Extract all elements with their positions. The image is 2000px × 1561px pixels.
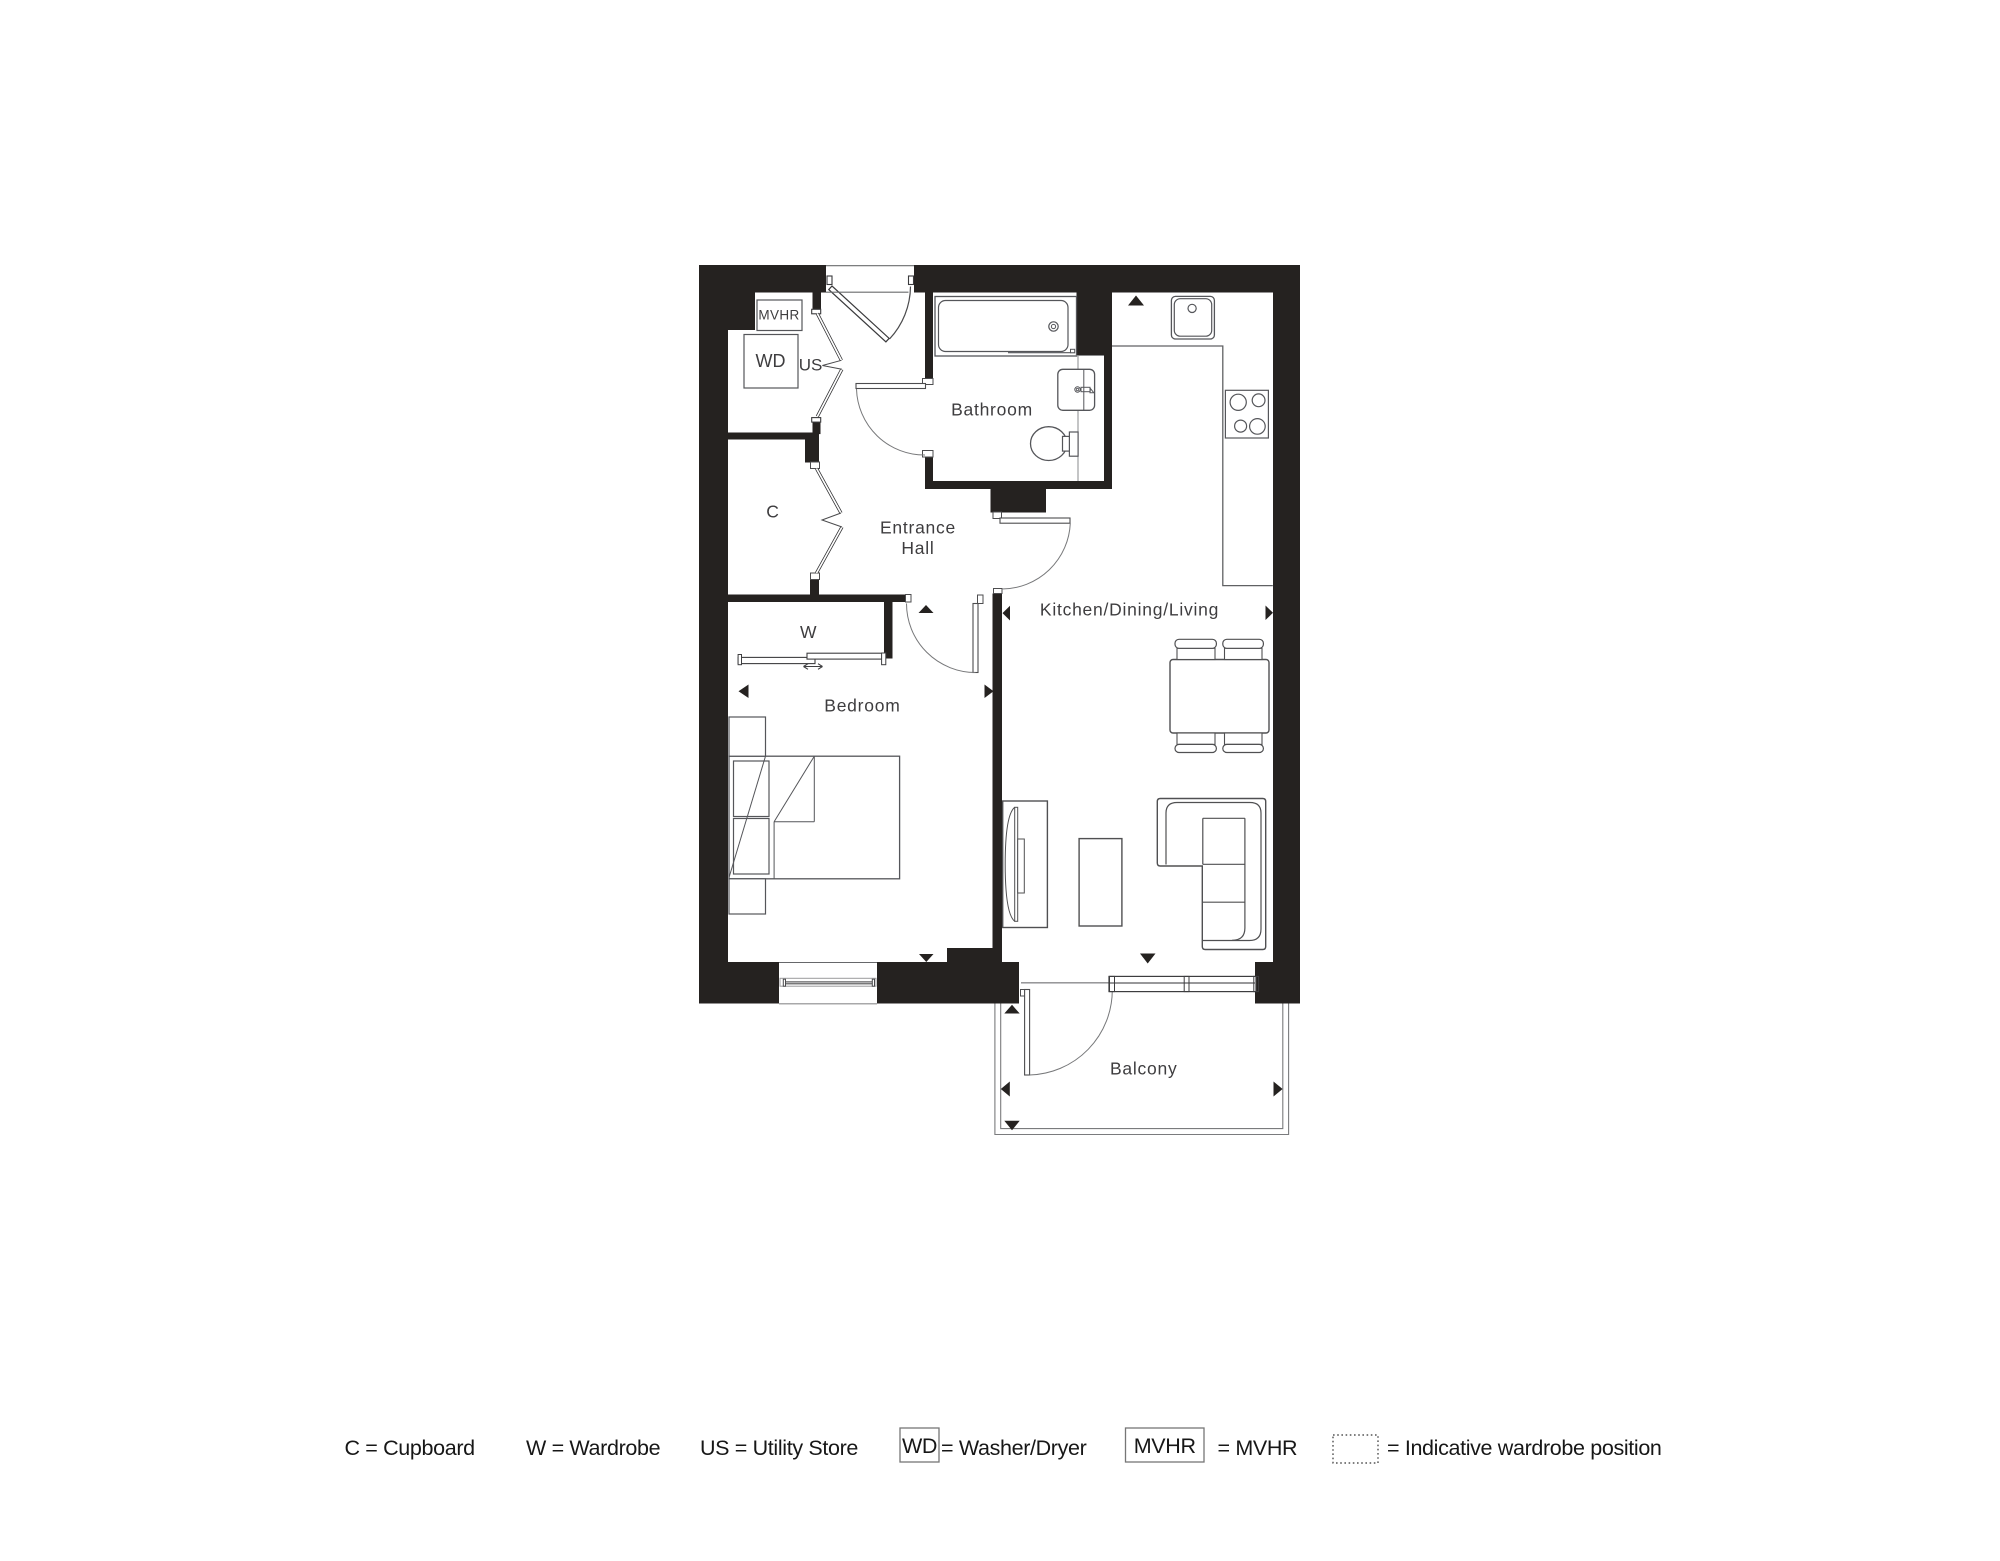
svg-text:Kitchen/Dining/Living: Kitchen/Dining/Living: [1040, 600, 1219, 620]
svg-text:Bathroom: Bathroom: [951, 400, 1033, 420]
svg-text:Entrance: Entrance: [880, 518, 956, 538]
svg-text:Balcony: Balcony: [1110, 1059, 1178, 1079]
svg-text:= MVHR: = MVHR: [1218, 1436, 1298, 1460]
svg-text:Bedroom: Bedroom: [824, 696, 900, 716]
svg-text:US = Utility Store: US = Utility Store: [700, 1436, 858, 1460]
svg-text:WD: WD: [902, 1434, 937, 1458]
svg-text:C: C: [766, 502, 779, 522]
svg-text:MVHR: MVHR: [758, 308, 799, 323]
svg-text:C = Cupboard: C = Cupboard: [345, 1436, 475, 1460]
svg-text:WD: WD: [756, 351, 786, 371]
svg-text:= Washer/Dryer: = Washer/Dryer: [941, 1436, 1087, 1460]
svg-text:= Indicative wardrobe position: = Indicative wardrobe position: [1387, 1436, 1662, 1460]
svg-text:Hall: Hall: [901, 538, 934, 558]
svg-text:W: W: [800, 622, 817, 642]
svg-text:W = Wardrobe: W = Wardrobe: [526, 1436, 660, 1460]
svg-text:US: US: [799, 356, 823, 375]
svg-text:MVHR: MVHR: [1134, 1434, 1196, 1458]
